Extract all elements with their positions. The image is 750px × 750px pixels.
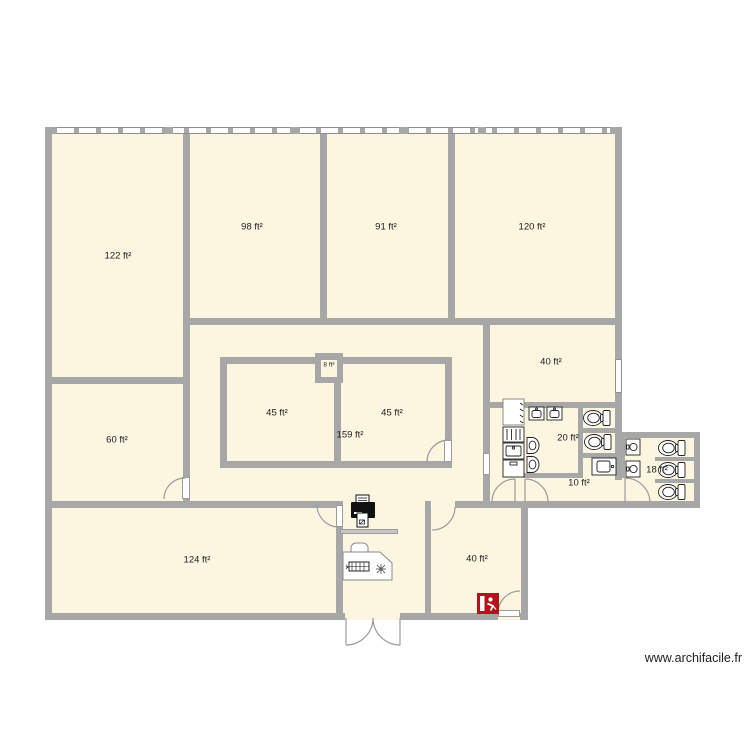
window-break <box>399 127 408 134</box>
wall-stall-divider <box>655 479 694 483</box>
watermark: www.archifacile.fr <box>645 651 742 665</box>
room-label-60: 60 ft² <box>106 435 128 446</box>
wall-interior <box>521 501 528 613</box>
floor-door-gap <box>432 501 455 508</box>
wall-inner-room <box>445 357 452 440</box>
room-label-45a: 45 ft² <box>266 408 288 419</box>
room-label-40-south: 40 ft² <box>466 554 488 565</box>
wall-interior <box>483 318 490 453</box>
room-label-124: 124 ft² <box>184 555 211 566</box>
wall-interior <box>455 501 700 508</box>
window-strip <box>57 127 610 134</box>
door-leaf <box>336 505 343 527</box>
room-label-10: 10 ft² <box>568 478 590 489</box>
floor-plan-canvas: 122 ft² 98 ft² 91 ft² 120 ft² 60 ft² 45 … <box>0 0 750 750</box>
wall-interior <box>483 475 490 501</box>
wall-interior <box>183 377 190 477</box>
door-leaf <box>483 453 490 475</box>
wall-interior <box>425 501 431 613</box>
wall-annex-right <box>694 432 700 508</box>
wall-exterior-left <box>45 127 52 620</box>
wall-interior <box>320 127 327 325</box>
wall-interior <box>448 127 455 325</box>
wall-interior <box>336 527 343 613</box>
wall-exterior-bottom <box>400 613 498 620</box>
floor-hall-desk <box>343 501 425 613</box>
double-door-arc <box>346 618 373 645</box>
room-label-8: 8 ft² <box>323 362 334 369</box>
window-break <box>478 127 486 134</box>
room-label-159: 159 ft² <box>337 430 364 441</box>
floor-passage-18 <box>615 478 625 501</box>
wall-partition <box>578 453 622 458</box>
door-leaf <box>182 477 190 499</box>
room-label-18: 18 ft² <box>646 465 668 476</box>
wall-interior <box>45 377 190 384</box>
wall-interior <box>190 318 615 325</box>
wall-interior <box>45 501 336 508</box>
floor-door-gap <box>345 613 400 620</box>
double-door-arc <box>373 618 400 645</box>
wall-exterior-bottom <box>520 613 528 620</box>
door-leaf <box>498 610 520 617</box>
window-right-wall <box>615 359 622 393</box>
door-leaf <box>444 440 452 462</box>
room-label-45b: 45 ft² <box>381 408 403 419</box>
room-label-98: 98 ft² <box>241 222 263 233</box>
room-label-40-mid: 40 ft² <box>540 357 562 368</box>
wall-inner-room <box>220 357 227 468</box>
room-label-91: 91 ft² <box>375 222 397 233</box>
wall-shelf <box>340 529 398 534</box>
room-label-20: 20 ft² <box>557 433 579 444</box>
wall-stall-divider <box>655 457 694 461</box>
window-break <box>164 127 173 134</box>
room-label-122: 122 ft² <box>105 251 132 262</box>
wall-annex-left <box>618 432 625 478</box>
room-label-120: 120 ft² <box>519 222 546 233</box>
window-break <box>290 127 300 134</box>
wall-interior <box>183 127 190 377</box>
wall-exterior-bottom <box>45 613 345 620</box>
wall-interior <box>483 402 622 408</box>
wall-partition <box>583 428 622 433</box>
wall-annex-top <box>618 432 700 438</box>
